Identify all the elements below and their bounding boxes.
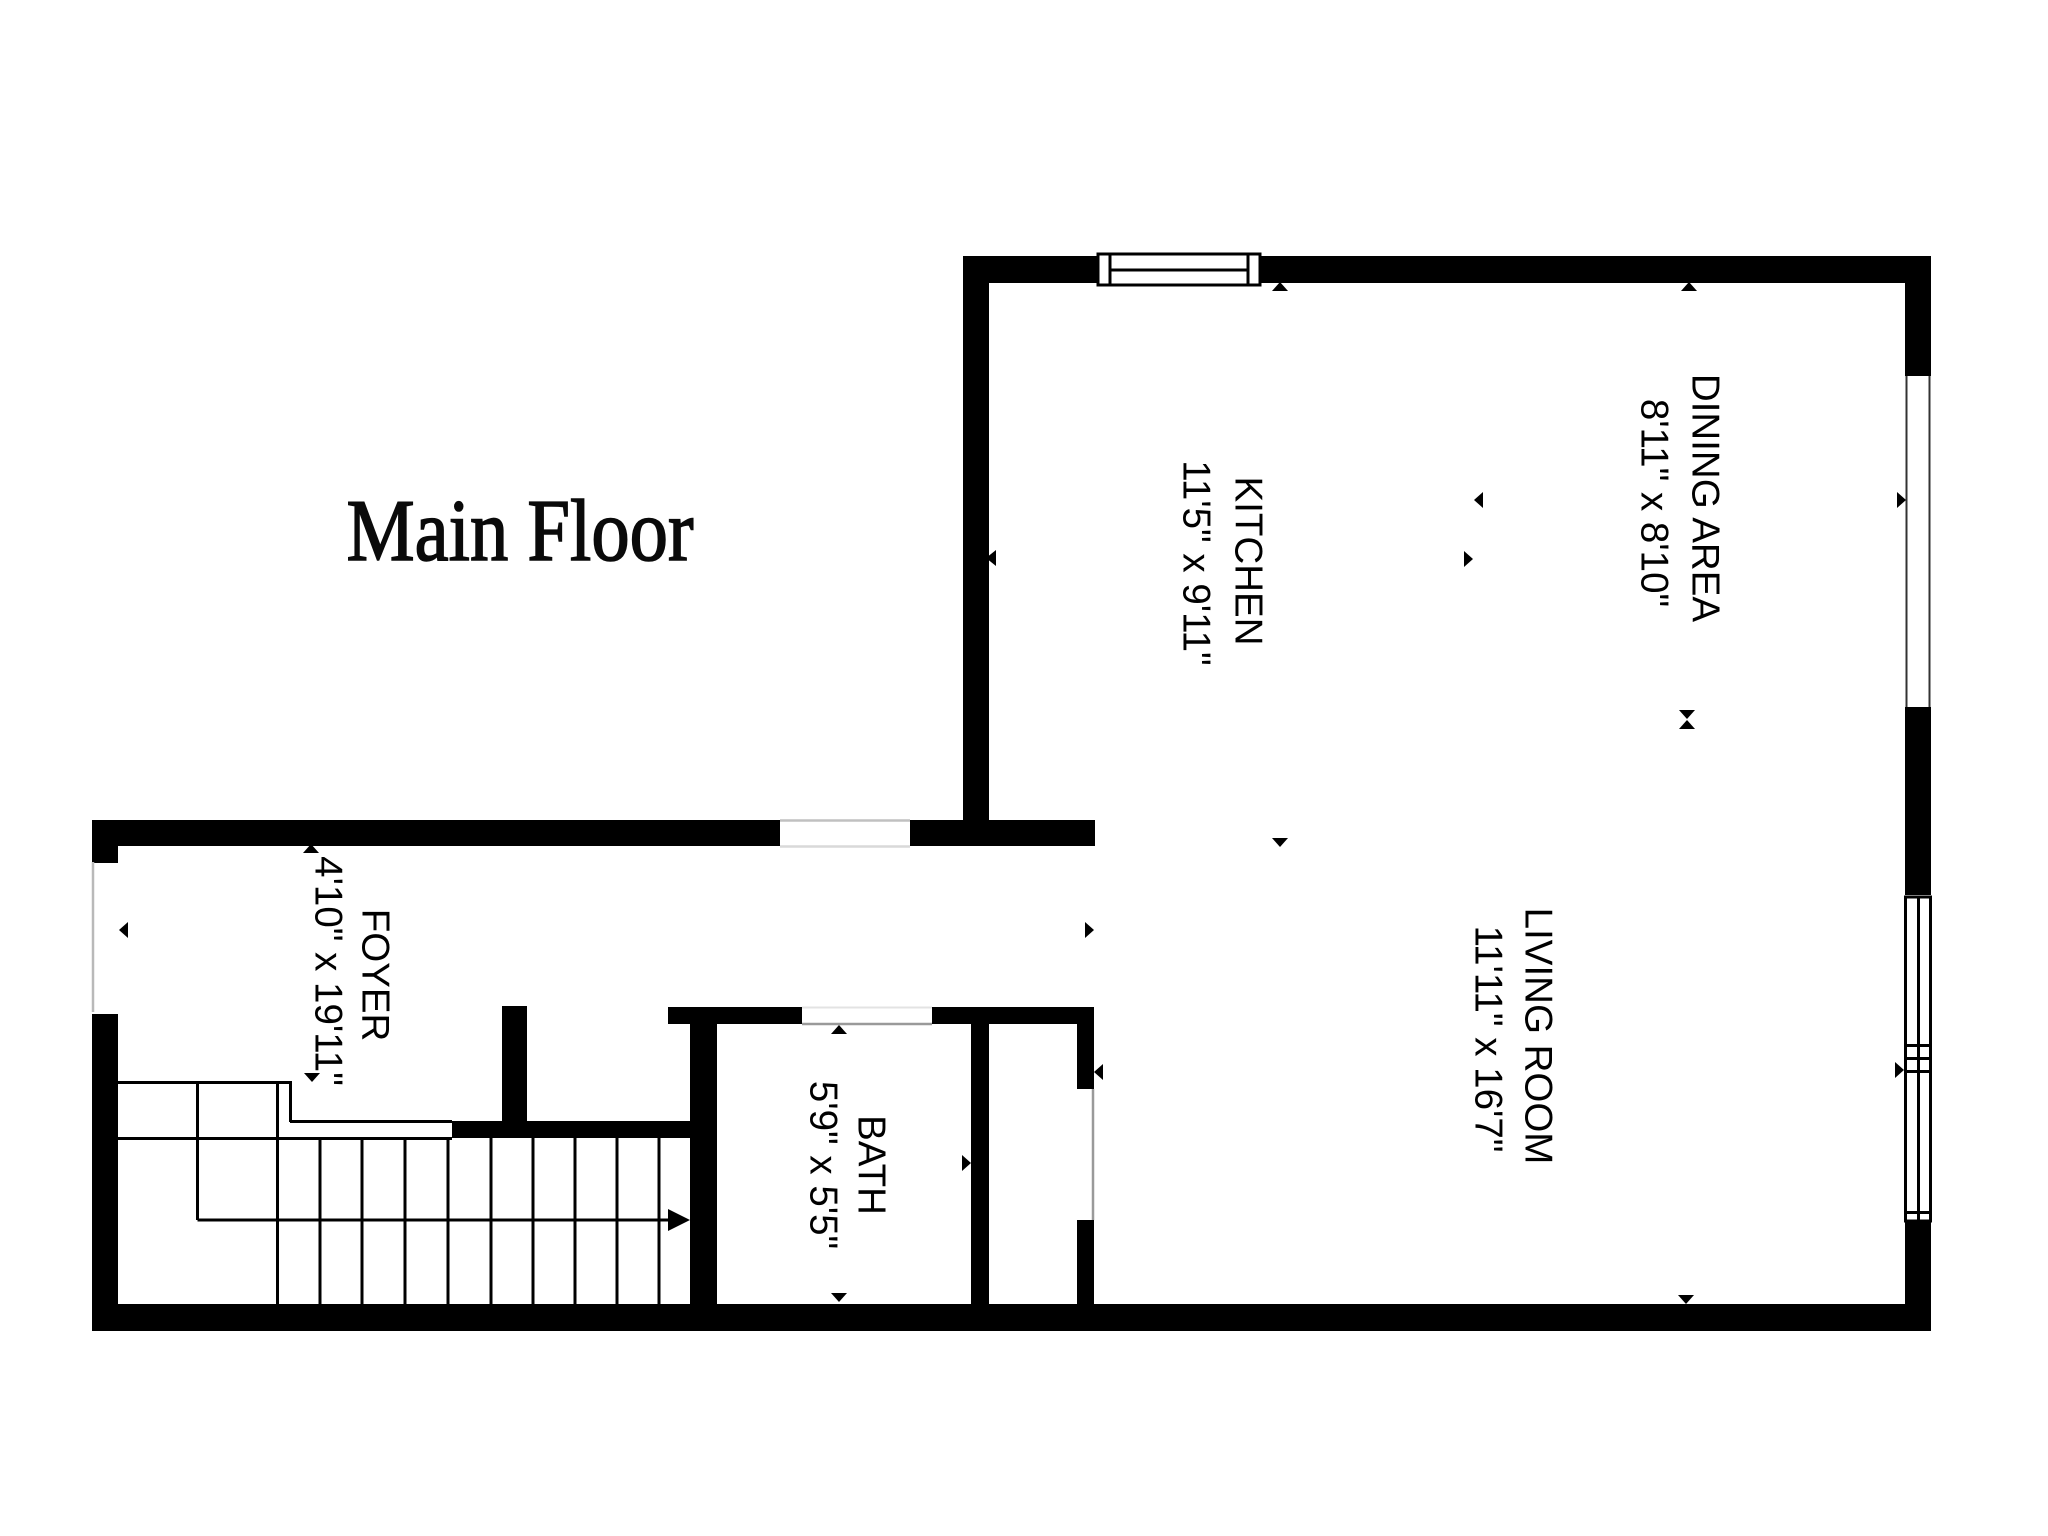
- svg-text:8'11" x 8'10": 8'11" x 8'10": [1633, 399, 1676, 607]
- svg-text:4'10" x 19'11": 4'10" x 19'11": [307, 856, 350, 1086]
- svg-text:11'11" x 16'7": 11'11" x 16'7": [1467, 926, 1510, 1153]
- svg-text:FOYER: FOYER: [354, 909, 397, 1042]
- svg-text:KITCHEN: KITCHEN: [1227, 477, 1270, 646]
- svg-text:11'5" x 9'11": 11'5" x 9'11": [1175, 460, 1218, 665]
- svg-text:DINING AREA: DINING AREA: [1684, 374, 1727, 622]
- svg-text:5'9" x 5'5": 5'9" x 5'5": [802, 1081, 845, 1249]
- svg-text:LIVING ROOM: LIVING ROOM: [1517, 908, 1560, 1165]
- svg-text:BATH: BATH: [850, 1115, 893, 1215]
- svg-text:Main Floor: Main Floor: [347, 481, 694, 579]
